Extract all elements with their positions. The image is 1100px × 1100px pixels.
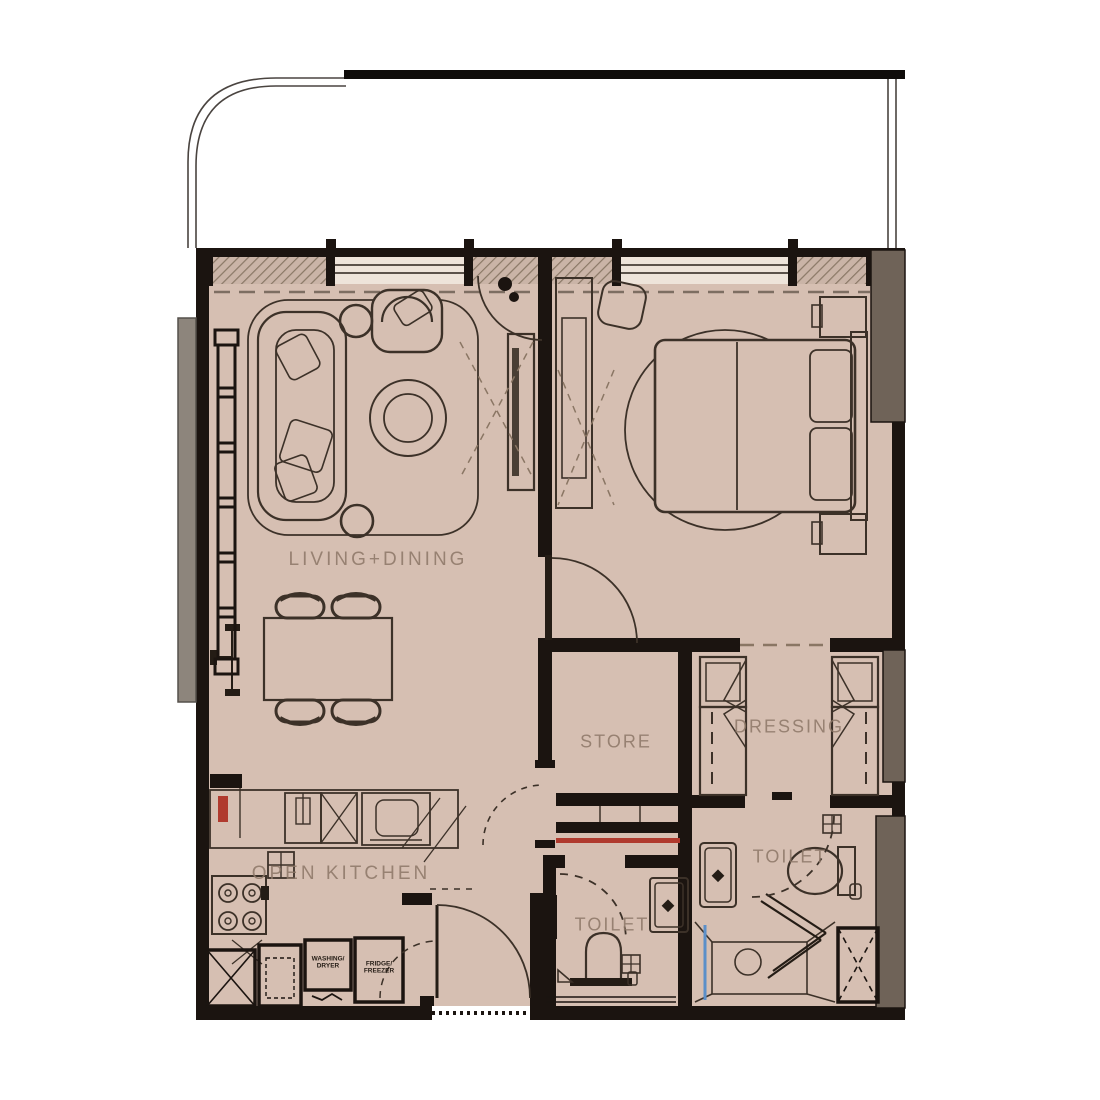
dining-table bbox=[264, 618, 392, 700]
double-bed bbox=[655, 340, 855, 512]
panel-accent bbox=[218, 796, 228, 822]
balcony-outline bbox=[188, 70, 905, 248]
bedroom-door-leaf bbox=[545, 555, 552, 640]
floor-plan-page: LIVING+DINING STORE DRESSING TOILET TOIL… bbox=[0, 0, 1100, 1100]
floor-plan-canvas bbox=[0, 0, 1100, 1100]
